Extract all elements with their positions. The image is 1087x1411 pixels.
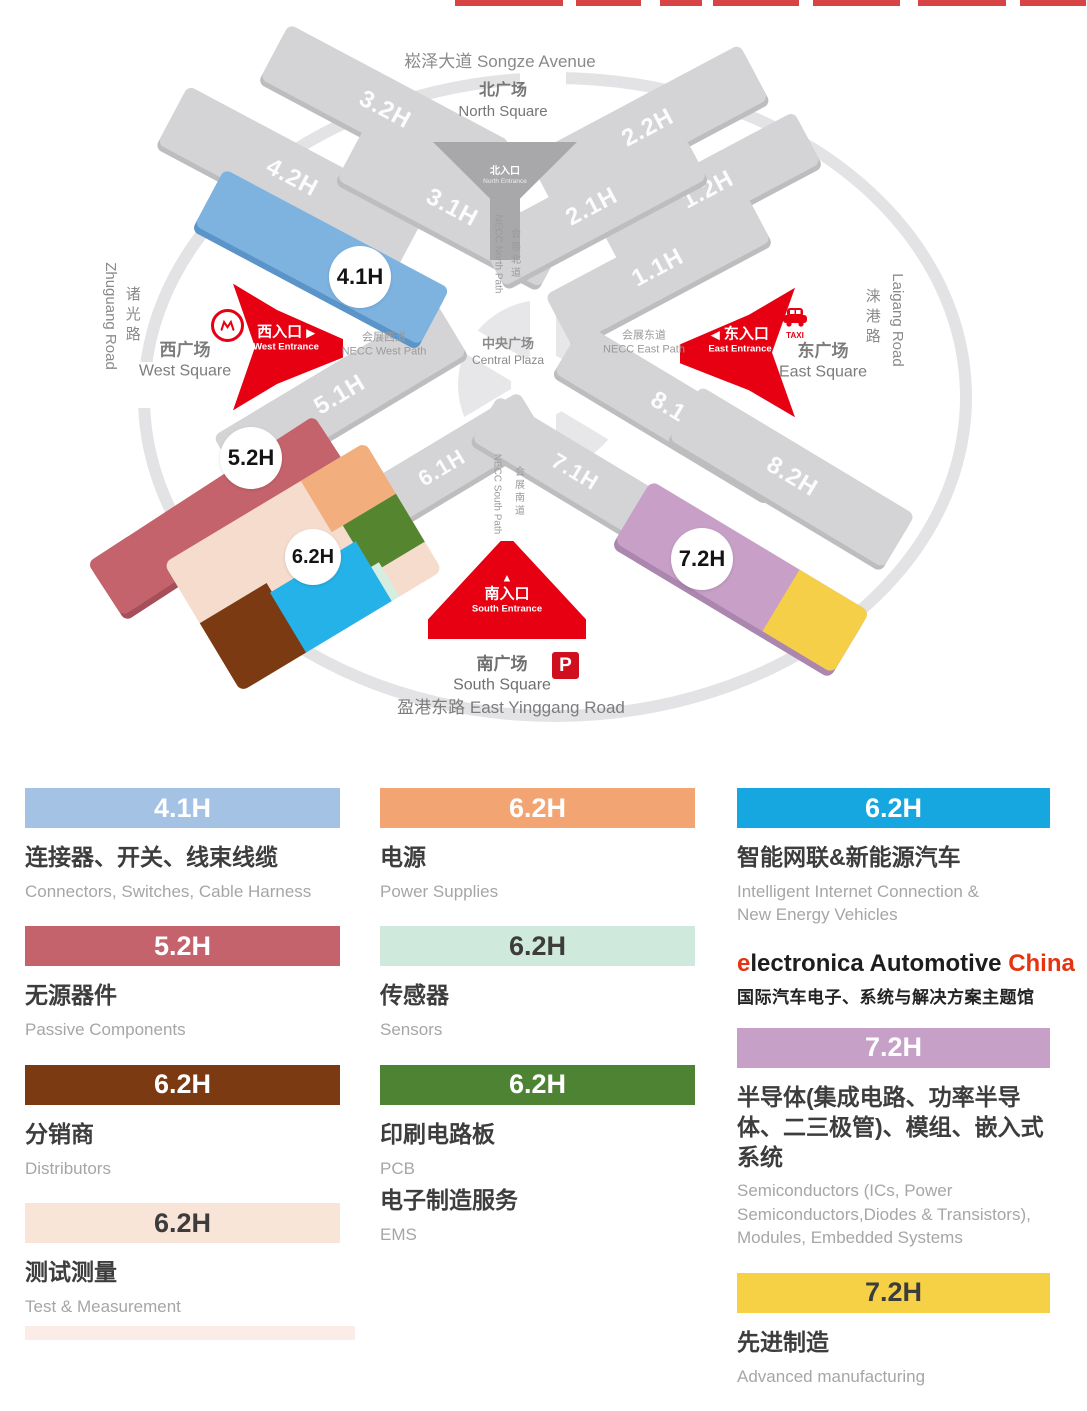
taxi-icon: TAXI	[780, 306, 810, 340]
cropped-title-fragment	[813, 0, 900, 6]
brand-tagline: 国际汽车电子、系统与解决方案主题馆	[737, 983, 1050, 1008]
legend-bar-6-2h-cyan: 6.2H	[737, 788, 1050, 828]
legend-bar-7-2h-lavender: 7.2H	[737, 1028, 1050, 1068]
page: { "map": { "songze_avenue": "崧泽大道 Songze…	[0, 0, 1087, 1340]
hall-label: 8.2H	[761, 451, 822, 503]
hall-label: 3.2H	[354, 85, 415, 135]
right-arrow-icon: ▶	[306, 327, 314, 339]
legend-bar-6-2h-pink: 6.2H	[25, 1203, 340, 1243]
central-plaza-label: 中央广场 Central Plaza	[472, 336, 544, 368]
legend-zh: 无源器件	[25, 981, 340, 1011]
legend-zh: 测试测量	[25, 1258, 340, 1288]
hall-label: 2.1H	[561, 182, 622, 232]
cropped-title-fragment	[660, 0, 702, 6]
up-arrow-icon: ▲	[472, 573, 542, 586]
cropped-title-fragment	[455, 0, 563, 6]
legend-column-3: 6.2H 智能网联&新能源汽车 Intelligent Internet Con…	[737, 788, 1050, 1411]
legend-bar-6-2h-brown: 6.2H	[25, 1065, 340, 1105]
legend-en: PCB	[380, 1157, 695, 1180]
legend-zh: 分销商	[25, 1120, 340, 1150]
legend-en: Passive Components	[25, 1018, 340, 1041]
hall-label: 7.1H	[547, 448, 604, 496]
badge-7-2h: 7.2H	[671, 528, 733, 590]
legend-zh: 印刷电路板	[380, 1120, 695, 1150]
legend-bar-6-2h-green: 6.2H	[380, 1065, 695, 1105]
south-entrance-label: ▲ 南入口 South Entrance	[472, 573, 542, 616]
badge-5-2h: 5.2H	[220, 427, 282, 489]
yinggang-road-label: 盈港东路 East Yinggang Road	[397, 697, 625, 719]
legend-zh: 半导体(集成电路、功率半导体、二三极管)、模组、嵌入式系统	[737, 1083, 1050, 1173]
legend-bar-6-2h-orange: 6.2H	[380, 788, 695, 828]
brand-electronica-automotive: electronica Automotive China	[737, 950, 1050, 978]
zhuguang-road-label-zh: 诸光路	[122, 286, 142, 346]
legend-zh: 智能网联&新能源汽车	[737, 843, 1050, 873]
cropped-title-fragment	[576, 0, 641, 6]
badge-4-1h: 4.1H	[329, 246, 391, 308]
left-arrow-icon: ◀	[711, 329, 719, 341]
hall-label: 1.1H	[627, 243, 688, 293]
south-path-label: NECC South Path	[491, 454, 504, 535]
west-square-label: 西广场 West Square	[139, 340, 231, 383]
hall-label: 6.1H	[414, 444, 471, 492]
hall-label: 5.1H	[309, 369, 370, 421]
east-path-label: 会展东道 NECC East Path	[603, 329, 685, 358]
legend-column-2: 6.2H 电源 Power Supplies 6.2H 传感器 Sensors …	[380, 788, 695, 1269]
east-square-label: 东广场 East Square	[779, 341, 867, 384]
venue-map: 3.2H 4.2H 3.1H 2.2H 1.2H 2.1H 1.1H 5.1H …	[0, 0, 1087, 740]
legend-en: Semiconductors (ICs, Power Semiconductor…	[737, 1179, 1050, 1249]
legend-en: New Energy Vehicles	[737, 903, 1050, 926]
laigang-road-label-en: Laigang Road	[887, 273, 907, 366]
west-path-label: 会展西道 NECC West Path	[342, 331, 427, 360]
legend-en: EMS	[380, 1223, 695, 1246]
south-path-label-zh: 会展南道	[512, 466, 525, 518]
cropped-title-fragment	[918, 0, 1006, 6]
legend-zh: 先进制造	[737, 1328, 1050, 1358]
east-entrance-label: ◀ 东入口 East Entrance	[708, 325, 771, 354]
legend-en: Sensors	[380, 1018, 695, 1041]
legend-bar-6-2h-mint: 6.2H	[380, 926, 695, 966]
north-path-label: NECC North Path	[492, 215, 505, 294]
legend-bar-4-1h: 4.1H	[25, 788, 340, 828]
legend-zh: 连接器、开关、线束线缆	[25, 843, 340, 873]
legend-bar-5-2h: 5.2H	[25, 926, 340, 966]
legend-bar-7-2h-yellow: 7.2H	[737, 1273, 1050, 1313]
legend-column-1: 4.1H 连接器、开关、线束线缆 Connectors, Switches, C…	[25, 788, 340, 1341]
legend-zh: 电子制造服务	[380, 1186, 695, 1216]
legend-zh: 传感器	[380, 981, 695, 1011]
south-square-label: 南广场 South Square	[453, 654, 551, 697]
north-path-label-zh: 会展北道	[508, 228, 521, 280]
legend-zh: 电源	[380, 843, 695, 873]
metro-icon	[211, 309, 244, 342]
legend-en: Connectors, Switches, Cable Harness	[25, 880, 340, 903]
legend-en: Advanced manufacturing	[737, 1365, 1050, 1388]
hall-label: 3.1H	[421, 183, 482, 233]
laigang-road-label-zh: 涞港路	[862, 288, 882, 348]
legend-en: Distributors	[25, 1157, 340, 1180]
cropped-title-fragment	[1020, 0, 1086, 6]
legend-partial-bar	[25, 1326, 355, 1340]
legend-en: Test & Measurement	[25, 1295, 340, 1318]
parking-icon: P	[552, 652, 579, 679]
north-entrance-label: 北入口 North Entrance	[483, 166, 527, 186]
legend-en: Power Supplies	[380, 880, 695, 903]
cropped-title-fragment	[713, 0, 799, 6]
north-square-label: 北广场 North Square	[458, 81, 547, 121]
songze-avenue-label: 崧泽大道 Songze Avenue	[404, 51, 596, 73]
badge-6-2h: 6.2H	[285, 529, 341, 585]
legend-en: Intelligent Internet Connection &	[737, 880, 1050, 903]
zhuguang-road-label-en: Zhuguang Road	[100, 262, 120, 370]
west-entrance-label: 西入口 ▶ West Entrance	[253, 323, 319, 352]
